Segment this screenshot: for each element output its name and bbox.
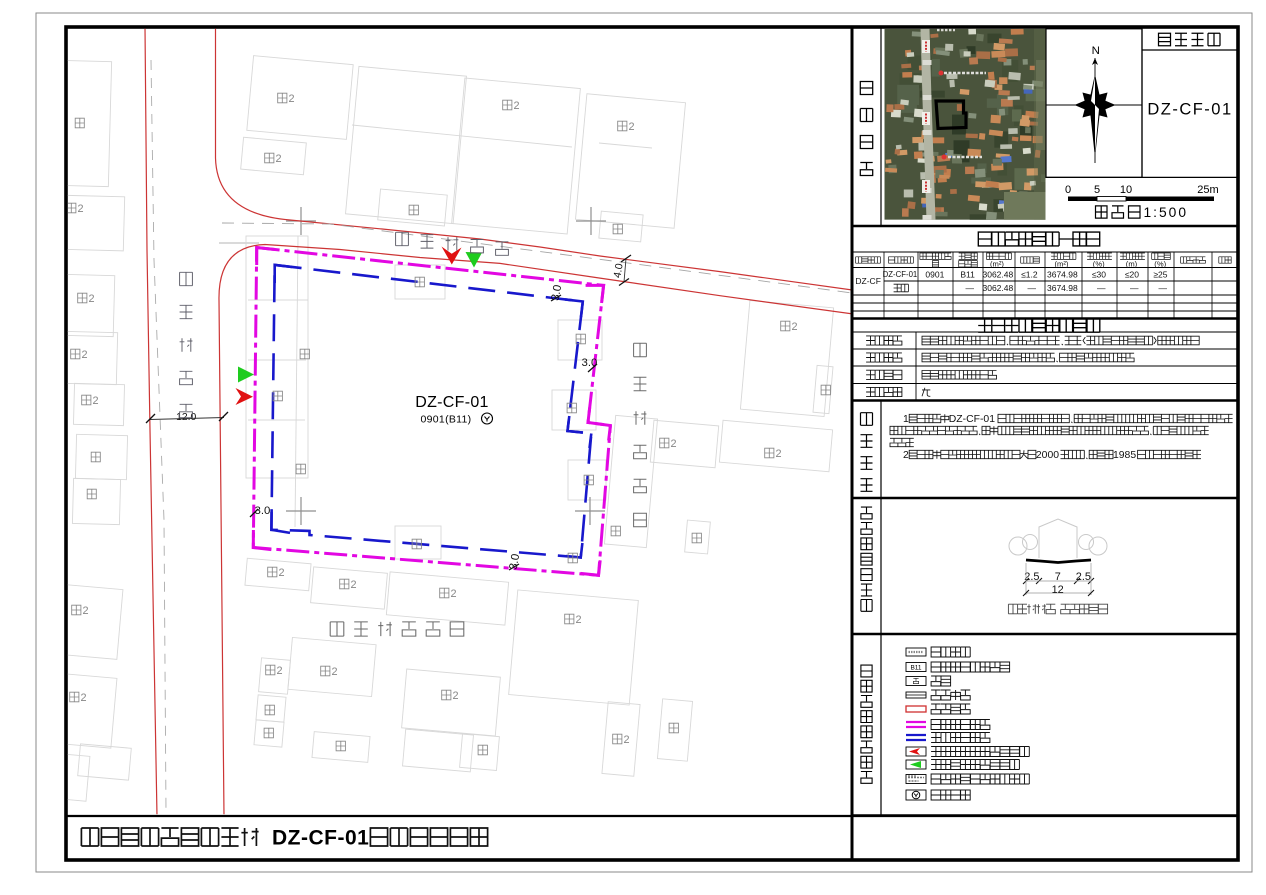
svg-text:2: 2 [277, 665, 284, 677]
svg-text:DZ-CF-01: DZ-CF-01 [272, 827, 369, 850]
svg-text:(m): (m) [1126, 260, 1138, 269]
svg-text:1:500: 1:500 [1144, 205, 1189, 220]
svg-text:2: 2 [451, 588, 458, 600]
svg-text:2: 2 [776, 448, 783, 460]
svg-text:2: 2 [83, 605, 90, 617]
svg-text:2: 2 [78, 203, 85, 215]
svg-text:2000: 2000 [1036, 450, 1059, 461]
svg-text:(m²): (m²) [990, 260, 1004, 269]
svg-text:2: 2 [93, 395, 100, 407]
svg-text:—: — [1097, 283, 1106, 293]
svg-text:(%): (%) [1154, 260, 1166, 269]
svg-text:3.0: 3.0 [582, 357, 598, 369]
svg-text:25m: 25m [1197, 184, 1218, 196]
svg-text:2: 2 [351, 579, 358, 591]
svg-text:3.0: 3.0 [255, 505, 271, 517]
svg-text:3062.48: 3062.48 [983, 283, 1014, 293]
svg-text:DZ-CF-01: DZ-CF-01 [1147, 101, 1232, 119]
svg-text:(%): (%) [1093, 260, 1105, 269]
svg-text:DZ-CF-01: DZ-CF-01 [883, 270, 918, 279]
svg-text:2.5: 2.5 [1076, 571, 1091, 583]
svg-text:10: 10 [1120, 184, 1132, 196]
svg-text:2: 2 [576, 614, 583, 626]
svg-text:0: 0 [1065, 184, 1071, 196]
svg-text:2: 2 [671, 438, 678, 450]
svg-text:2: 2 [279, 567, 286, 579]
svg-text:2: 2 [453, 690, 460, 702]
svg-text:2: 2 [514, 100, 521, 112]
svg-text:DZ-CF: DZ-CF [855, 276, 881, 286]
svg-text:—: — [1130, 283, 1139, 293]
svg-text:3062.48: 3062.48 [983, 269, 1014, 279]
svg-text:2: 2 [82, 349, 89, 361]
svg-text:2: 2 [289, 93, 296, 105]
svg-text:B11: B11 [910, 665, 921, 672]
svg-text:2: 2 [332, 666, 339, 678]
svg-text:3674.98: 3674.98 [1047, 269, 1078, 279]
svg-text:2: 2 [792, 321, 799, 333]
svg-text:≤20: ≤20 [1125, 269, 1139, 279]
svg-text:B11: B11 [960, 269, 975, 279]
svg-text:2.5: 2.5 [1024, 571, 1039, 583]
svg-text:2: 2 [89, 293, 96, 305]
svg-text:1985: 1985 [1113, 450, 1136, 461]
svg-text:3674.98: 3674.98 [1047, 283, 1078, 293]
svg-text:≥25: ≥25 [1153, 269, 1167, 279]
svg-text:—: — [1159, 283, 1168, 293]
svg-text:—: — [1028, 283, 1037, 293]
svg-text:DZ-CF-01: DZ-CF-01 [415, 394, 489, 411]
svg-text:—: — [966, 283, 975, 293]
svg-text:≤1.2: ≤1.2 [1021, 269, 1038, 279]
svg-text:0901: 0901 [925, 269, 944, 279]
svg-text:7: 7 [1055, 571, 1061, 583]
svg-text:12: 12 [1052, 584, 1064, 596]
svg-text:0901(B11): 0901(B11) [421, 414, 472, 426]
svg-text:5: 5 [1094, 184, 1100, 196]
svg-text:2: 2 [624, 734, 631, 746]
svg-text:N: N [1092, 45, 1100, 57]
svg-text:2: 2 [276, 153, 283, 165]
svg-text:2: 2 [81, 692, 88, 704]
svg-text:2: 2 [629, 121, 636, 133]
svg-text:≤30: ≤30 [1092, 269, 1106, 279]
svg-text:(m²): (m²) [1055, 260, 1069, 269]
svg-text:2: 2 [903, 450, 909, 461]
svg-text:1: 1 [903, 414, 909, 425]
svg-text:DZ-CF-01: DZ-CF-01 [949, 414, 995, 425]
